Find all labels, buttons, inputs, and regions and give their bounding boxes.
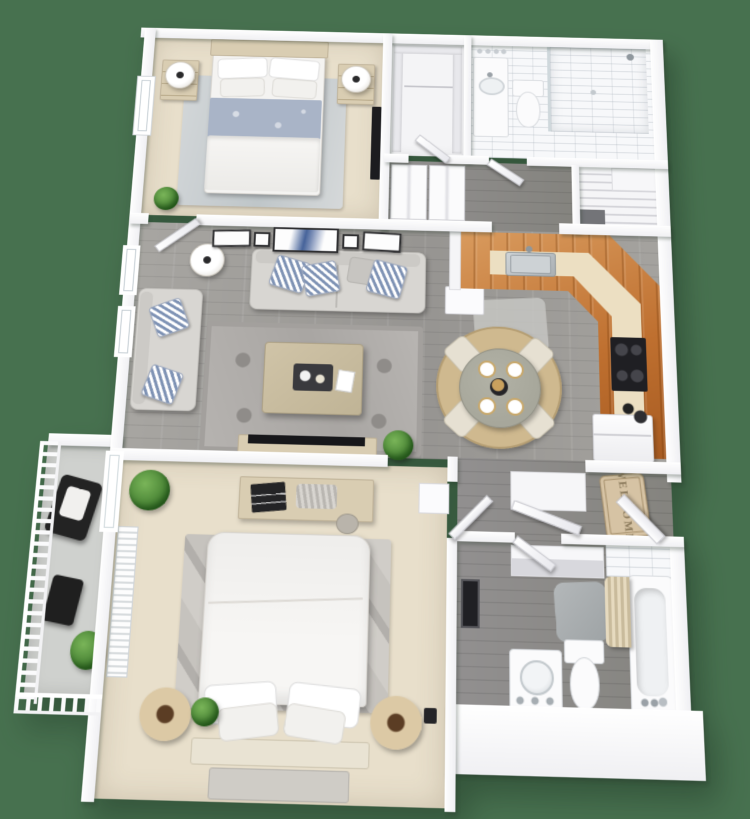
bed2-pillow-3 xyxy=(217,702,280,742)
sofa-pillow-2 xyxy=(301,260,341,297)
kitchen-counter-end-panel xyxy=(449,231,461,290)
closet-shelf-right xyxy=(452,46,462,153)
closet-bath-divider-wall xyxy=(463,35,471,162)
coffee-table-tray xyxy=(293,363,334,391)
bed1-pillow-3 xyxy=(220,78,265,98)
bath1-toilet-bowl xyxy=(516,91,541,127)
kitchen-sink-basin xyxy=(510,255,551,274)
bedroom1-mirror xyxy=(370,107,381,180)
wall-art-2 xyxy=(253,232,270,247)
bath2-sink xyxy=(520,660,554,696)
bed1-pillow-1 xyxy=(217,57,267,79)
bed2-bench xyxy=(207,767,349,803)
dresser-black-tray xyxy=(250,482,286,513)
hall-closet-bifold-1 xyxy=(390,164,427,220)
bath1-sink xyxy=(479,77,505,95)
place-setting-1 xyxy=(478,360,496,378)
shower-curtain xyxy=(604,576,631,647)
wall-art-3 xyxy=(272,227,339,253)
bath2-leaning-mirror xyxy=(461,579,480,628)
bath1-faucet xyxy=(487,72,493,77)
bath1-mirror-lights xyxy=(475,49,506,56)
counter-deco-pots xyxy=(620,401,651,427)
shower-head xyxy=(626,54,634,61)
floorplan-image[interactable]: WELCOME xyxy=(5,26,708,819)
bath2-top-wall-a xyxy=(457,531,515,543)
wall-art-4 xyxy=(342,234,359,249)
balcony-railing-bottom xyxy=(13,692,102,715)
outer-wall-bottom-slab xyxy=(445,704,706,781)
dining-centerpiece xyxy=(490,378,508,396)
bedroom2-right-wall-upper xyxy=(447,456,457,481)
bathtub-basin xyxy=(634,588,669,697)
bathtub-faucet xyxy=(639,696,667,710)
bedroom2-black-deco xyxy=(424,708,437,724)
bath1-south-wall-a xyxy=(384,153,409,162)
kitchen-faucet xyxy=(526,246,533,253)
bedroom2-right-wall-lower xyxy=(444,538,457,812)
wall-art-1 xyxy=(212,229,251,247)
bath1-shower xyxy=(547,47,649,134)
shower-drain xyxy=(590,90,596,95)
place-setting-3 xyxy=(478,397,496,415)
bath1-vanity xyxy=(473,57,509,138)
place-setting-2 xyxy=(506,361,524,379)
entry-top-wall xyxy=(585,460,681,475)
bed2-headboard xyxy=(190,737,370,769)
bed1-pillow-4 xyxy=(271,78,317,100)
bedroom2-wall-cabinet xyxy=(418,483,449,514)
page: { "image": { "kind": "3d-floor-plan-rend… xyxy=(0,0,750,750)
closet-shelf-back xyxy=(394,45,462,55)
bed1-duvet xyxy=(204,135,320,192)
bed2-duvet xyxy=(198,532,371,708)
dresser-textile xyxy=(296,484,338,509)
wall-art-5 xyxy=(362,231,402,252)
hall-closet-bifold-2 xyxy=(429,165,466,221)
dishwasher xyxy=(445,286,484,315)
bath1-south-wall-b xyxy=(446,155,489,165)
stove-cooktop xyxy=(610,337,647,392)
bed1-blanket xyxy=(208,98,322,140)
place-setting-4 xyxy=(506,398,524,416)
bath2-bath-mat xyxy=(553,581,609,642)
staircase-landing xyxy=(611,168,657,192)
coffee-table-book xyxy=(335,369,355,393)
bedroom1-south-wall-a xyxy=(129,213,149,224)
bath2-shower-tile-wall xyxy=(606,545,671,578)
bed1-headboard xyxy=(210,39,329,58)
